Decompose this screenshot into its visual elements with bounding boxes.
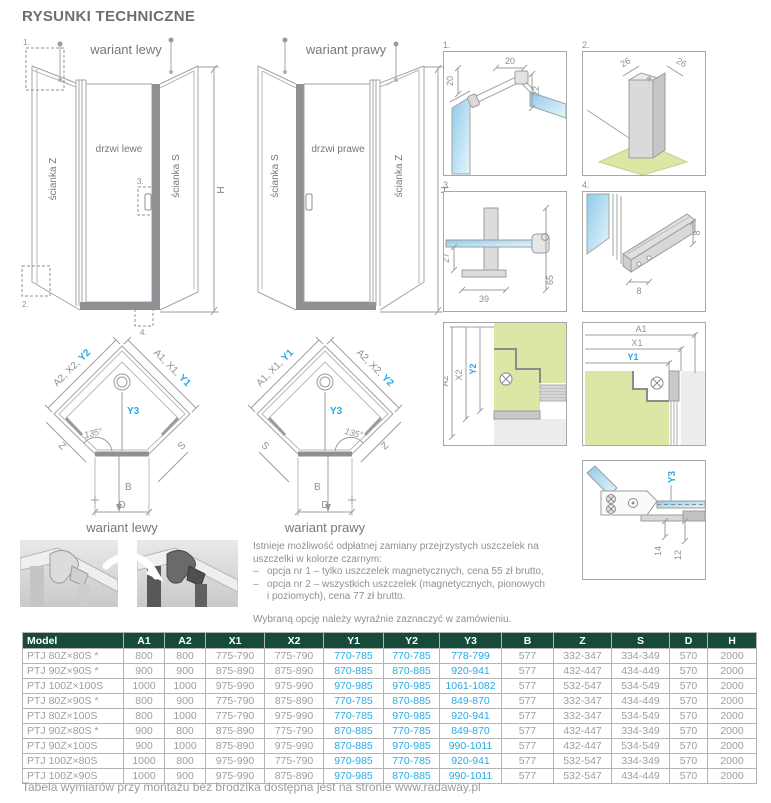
value-cell: 334-349 <box>612 754 670 769</box>
value-cell: 770-785 <box>384 649 440 664</box>
value-cell: 532-547 <box>554 754 612 769</box>
col-header-h: H <box>708 633 757 649</box>
svg-text:A1: A1 <box>635 324 646 334</box>
value-cell: 2000 <box>708 664 757 679</box>
svg-text:X1: X1 <box>631 338 642 348</box>
svg-text:8: 8 <box>636 286 641 296</box>
value-cell: 570 <box>670 664 708 679</box>
table-row: PTJ 90Z×90S *900900875-890875-890870-885… <box>23 664 757 679</box>
table-row: PTJ 100Z×100S10001000975-990975-990970-9… <box>23 679 757 694</box>
table-row: PTJ 90Z×100S9001000875-890975-990870-885… <box>23 739 757 754</box>
value-cell: 2000 <box>708 694 757 709</box>
value-cell: 975-990 <box>265 709 324 724</box>
value-cell: 900 <box>124 664 165 679</box>
value-cell: 875-890 <box>206 739 265 754</box>
value-cell: 1000 <box>165 709 206 724</box>
table-row: PTJ 80Z×80S *800800775-790775-790770-785… <box>23 649 757 664</box>
col-header-a2: A2 <box>165 633 206 649</box>
value-cell: 577 <box>502 754 554 769</box>
s-label: S <box>176 440 189 453</box>
value-cell: 332-347 <box>554 709 612 724</box>
value-cell: 2000 <box>708 724 757 739</box>
table-row: PTJ 80Z×100S8001000775-790975-990770-785… <box>23 709 757 724</box>
value-cell: 800 <box>165 754 206 769</box>
value-cell: 775-790 <box>206 709 265 724</box>
y3-label: Y3 <box>330 406 343 417</box>
page-title: RYSUNKI TECHNICZNE <box>22 8 195 25</box>
value-cell: 434-449 <box>612 694 670 709</box>
value-cell: 532-547 <box>554 679 612 694</box>
value-cell: 2000 <box>708 679 757 694</box>
value-cell: 870-885 <box>324 724 384 739</box>
dash: – <box>253 566 267 579</box>
value-cell: 900 <box>165 664 206 679</box>
value-cell: 875-890 <box>206 724 265 739</box>
svg-text:Y1: Y1 <box>627 352 638 362</box>
table-row: PTJ 80Z×90S *800900775-790875-890770-785… <box>23 694 757 709</box>
value-cell: 900 <box>124 724 165 739</box>
d-label: D <box>118 500 125 511</box>
model-cell: PTJ 100Z×80S <box>23 754 124 769</box>
svg-text:22: 22 <box>531 86 541 96</box>
value-cell: 920-941 <box>440 754 502 769</box>
value-cell: 775-790 <box>265 724 324 739</box>
value-cell: 770-785 <box>324 649 384 664</box>
value-cell: 2000 <box>708 754 757 769</box>
value-cell: 800 <box>165 724 206 739</box>
plan-left-variant: Y3 135° A2, X2, Y2 A1, X1, Y1 Z S B D wa… <box>22 334 222 536</box>
detail-1-drawing: 20 20 22 <box>443 51 567 176</box>
col-header-a1: A1 <box>124 633 165 649</box>
value-cell: 434-449 <box>612 769 670 784</box>
d-label: D <box>321 500 328 511</box>
plan-caption: wariant prawy <box>284 520 366 535</box>
svg-text:8: 8 <box>692 230 702 235</box>
value-cell: 577 <box>502 724 554 739</box>
svg-text:Y3: Y3 <box>667 470 678 483</box>
note-intro: Istnieje możliwość odpłatnej zamiany prz… <box>253 541 545 566</box>
door-glass <box>304 84 370 302</box>
value-cell: 332-347 <box>554 649 612 664</box>
marker-2: 2. <box>22 300 29 309</box>
b-label: B <box>125 482 132 493</box>
col-header-y3: Y3 <box>440 633 502 649</box>
value-cell: 570 <box>670 649 708 664</box>
model-cell: PTJ 100Z×100S <box>23 679 124 694</box>
value-cell: 1000 <box>124 754 165 769</box>
svg-text:X2: X2 <box>454 369 464 380</box>
height-dimension <box>380 65 443 315</box>
door-glass <box>86 84 152 302</box>
model-cell: PTJ 90Z×80S * <box>23 724 124 739</box>
value-cell: 1000 <box>165 739 206 754</box>
note-outro: Wybraną opcję należy wyraźnie zaznaczyć … <box>253 614 545 627</box>
value-cell: 332-347 <box>554 694 612 709</box>
value-cell: 770-785 <box>324 694 384 709</box>
value-cell: 534-549 <box>612 709 670 724</box>
value-cell: 975-990 <box>265 739 324 754</box>
technical-drawings-page: RYSUNKI TECHNICZNE wariant lewy ścianka … <box>0 0 771 803</box>
col-header-z: Z <box>554 633 612 649</box>
height-dimension <box>160 65 219 315</box>
elevation-left-variant: wariant lewy ścianka Z drzwi lewe ś <box>18 34 234 336</box>
value-cell: 920-941 <box>440 709 502 724</box>
plan-caption: wariant lewy <box>85 520 158 535</box>
value-cell: 570 <box>670 724 708 739</box>
detail-1-label: 1. <box>443 40 567 51</box>
svg-text:27: 27 <box>443 253 451 263</box>
svg-text:A2: A2 <box>443 375 450 386</box>
plan-corner-left-drawing: A2 X2 Y2 <box>443 322 567 446</box>
value-cell: 970-985 <box>324 679 384 694</box>
model-cell: PTJ 90Z×90S * <box>23 664 124 679</box>
svg-text:65: 65 <box>545 275 555 285</box>
value-cell: 1061-1082 <box>440 679 502 694</box>
value-cell: 875-890 <box>206 664 265 679</box>
value-cell: 432-447 <box>554 739 612 754</box>
value-cell: 849-870 <box>440 724 502 739</box>
detail-2-label: 2. <box>582 40 706 51</box>
value-cell: 778-799 <box>440 649 502 664</box>
y3-label: Y3 <box>127 406 140 417</box>
value-cell: 990-1011 <box>440 739 502 754</box>
value-cell: 770-785 <box>324 709 384 724</box>
value-cell: 570 <box>670 739 708 754</box>
detail-4: 4. 8 8 <box>582 180 706 317</box>
value-cell: 534-549 <box>612 679 670 694</box>
value-cell: 1000 <box>165 679 206 694</box>
value-cell: 577 <box>502 694 554 709</box>
hinge-profile <box>76 80 86 306</box>
value-cell: 434-449 <box>612 664 670 679</box>
value-cell: 534-549 <box>612 739 670 754</box>
value-cell: 975-990 <box>265 679 324 694</box>
marker-1: 1. <box>23 38 30 47</box>
elevation-right-variant: wariant prawy ścianka S drzwi prawe ścia <box>238 34 454 336</box>
detail-3: 3. 27 39 65 <box>443 180 567 317</box>
svg-text:20: 20 <box>445 76 455 86</box>
value-cell: 775-790 <box>265 649 324 664</box>
value-cell: 432-447 <box>554 724 612 739</box>
svg-text:26: 26 <box>675 56 689 70</box>
col-header-x1: X1 <box>206 633 265 649</box>
swap-arrow-icon <box>98 548 168 596</box>
value-cell: 775-790 <box>206 694 265 709</box>
value-cell: 900 <box>165 694 206 709</box>
value-cell: 970-985 <box>384 679 440 694</box>
svg-text:12: 12 <box>673 550 683 560</box>
detail-2-drawing: 26 26 <box>582 51 706 176</box>
detail-3-label: 3. <box>443 180 567 191</box>
value-cell: 334-349 <box>612 649 670 664</box>
table-row: PTJ 100Z×80S1000800975-990775-790970-985… <box>23 754 757 769</box>
height-label: H <box>216 186 227 193</box>
value-cell: 334-349 <box>612 724 670 739</box>
rod-knob <box>58 42 63 47</box>
model-cell: PTJ 80Z×90S * <box>23 694 124 709</box>
value-cell: 577 <box>502 649 554 664</box>
value-cell: 975-990 <box>206 679 265 694</box>
value-cell: 577 <box>502 664 554 679</box>
value-cell: 2000 <box>708 649 757 664</box>
elevation-caption: wariant lewy <box>89 42 162 57</box>
door-stile <box>296 84 304 310</box>
model-cell: PTJ 90Z×100S <box>23 739 124 754</box>
svg-text:14: 14 <box>653 546 663 556</box>
wall-right-label: ścianka S <box>171 154 182 198</box>
table-row: PTJ 90Z×80S *900800875-890775-790870-885… <box>23 724 757 739</box>
wall-left-label: ścianka S <box>270 154 281 198</box>
svg-text:26: 26 <box>619 56 633 70</box>
door-handle <box>145 194 151 210</box>
value-cell: 570 <box>670 679 708 694</box>
value-cell: 800 <box>124 709 165 724</box>
door-stile <box>152 84 160 310</box>
detail-2: 2. 26 26 <box>582 40 706 181</box>
door-label: drzwi lewe <box>96 144 143 155</box>
value-cell: 2000 <box>708 709 757 724</box>
value-cell: 800 <box>124 694 165 709</box>
value-cell: 870-885 <box>384 664 440 679</box>
value-cell: 770-785 <box>384 724 440 739</box>
col-header-x2: X2 <box>265 633 324 649</box>
value-cell: 577 <box>502 739 554 754</box>
value-cell: 800 <box>124 649 165 664</box>
value-cell: 970-985 <box>324 754 384 769</box>
value-cell: 775-790 <box>265 754 324 769</box>
detail-plan-left-corner: A2 X2 Y2 <box>443 322 567 451</box>
value-cell: 870-885 <box>324 664 384 679</box>
value-cell: 775-790 <box>206 649 265 664</box>
value-cell: 570 <box>670 769 708 784</box>
door-bottom-rail <box>296 302 376 310</box>
detail-3-drawing: 27 39 65 <box>443 191 567 312</box>
marker-box-2 <box>22 266 50 296</box>
dash: – <box>253 579 267 604</box>
col-header-d: D <box>670 633 708 649</box>
value-cell: 570 <box>670 694 708 709</box>
value-cell: 1000 <box>124 679 165 694</box>
value-cell: 970-985 <box>384 739 440 754</box>
value-cell: 2000 <box>708 739 757 754</box>
detail-1: 1. 20 20 22 <box>443 40 567 181</box>
hinge-profile <box>370 80 380 306</box>
svg-text:20: 20 <box>505 56 515 66</box>
detail-4-label: 4. <box>582 180 706 191</box>
z-label: Z <box>56 440 68 452</box>
value-cell: 875-890 <box>265 694 324 709</box>
value-cell: 875-890 <box>265 664 324 679</box>
plan-right-variant: Y3 135° A1, X1, Y1 A2, X2, Y2 S Z B D wa… <box>225 334 425 536</box>
wall-right-label: ścianka Z <box>394 155 405 198</box>
dimensions-table: ModelA1A2X1X2Y1Y2Y3BZSDH PTJ 80Z×80S *80… <box>22 632 757 784</box>
z-label: Z <box>379 440 391 452</box>
value-cell: 800 <box>165 649 206 664</box>
value-cell: 577 <box>502 679 554 694</box>
value-cell: 975-990 <box>206 754 265 769</box>
value-cell: 432-447 <box>554 664 612 679</box>
wall-left-label: ścianka Z <box>48 158 59 201</box>
plan-corner-right-drawing: A1 X1 Y1 <box>582 322 706 446</box>
value-cell: 570 <box>670 709 708 724</box>
value-cell: 920-941 <box>440 664 502 679</box>
hinge-drawing: Y3 14 12 <box>582 460 706 580</box>
value-cell: 577 <box>502 769 554 784</box>
value-cell: 577 <box>502 709 554 724</box>
value-cell: 570 <box>670 754 708 769</box>
detail-plan-right-corner: A1 X1 Y1 <box>582 322 706 451</box>
note-option-2: – opcja nr 2 – wszystkich uszczelek (mag… <box>253 579 545 604</box>
footer-note: Tabela wymiarów przy montażu bez brodzik… <box>22 780 481 794</box>
col-header-s: S <box>612 633 670 649</box>
model-cell: PTJ 80Z×80S * <box>23 649 124 664</box>
value-cell: 870-885 <box>384 694 440 709</box>
value-cell: 2000 <box>708 769 757 784</box>
b-label: B <box>314 482 321 493</box>
value-cell: 849-870 <box>440 694 502 709</box>
marker-3: 3. <box>137 177 144 186</box>
door-handle <box>306 194 312 210</box>
svg-text:Y2: Y2 <box>468 363 478 374</box>
col-header-y1: Y1 <box>324 633 384 649</box>
elevation-caption: wariant prawy <box>305 42 387 57</box>
col-header-model: Model <box>23 633 124 649</box>
table-header-row: ModelA1A2X1X2Y1Y2Y3BZSDH <box>23 633 757 649</box>
s-label: S <box>259 440 272 453</box>
note-option-1: – opcja nr 1 – tylko uszczelek magnetycz… <box>253 566 545 579</box>
door-label: drzwi prawe <box>311 144 365 155</box>
detail-4-drawing: 8 8 <box>582 191 706 312</box>
gasket-options-note: Istnieje możliwość odpłatnej zamiany prz… <box>253 541 545 626</box>
value-cell: 532-547 <box>554 769 612 784</box>
svg-text:39: 39 <box>479 294 489 304</box>
col-header-b: B <box>502 633 554 649</box>
col-header-y2: Y2 <box>384 633 440 649</box>
value-cell: 900 <box>124 739 165 754</box>
value-cell: 970-985 <box>384 709 440 724</box>
value-cell: 870-885 <box>324 739 384 754</box>
value-cell: 770-785 <box>384 754 440 769</box>
model-cell: PTJ 80Z×100S <box>23 709 124 724</box>
detail-hinge: Y3 14 12 <box>582 460 706 585</box>
